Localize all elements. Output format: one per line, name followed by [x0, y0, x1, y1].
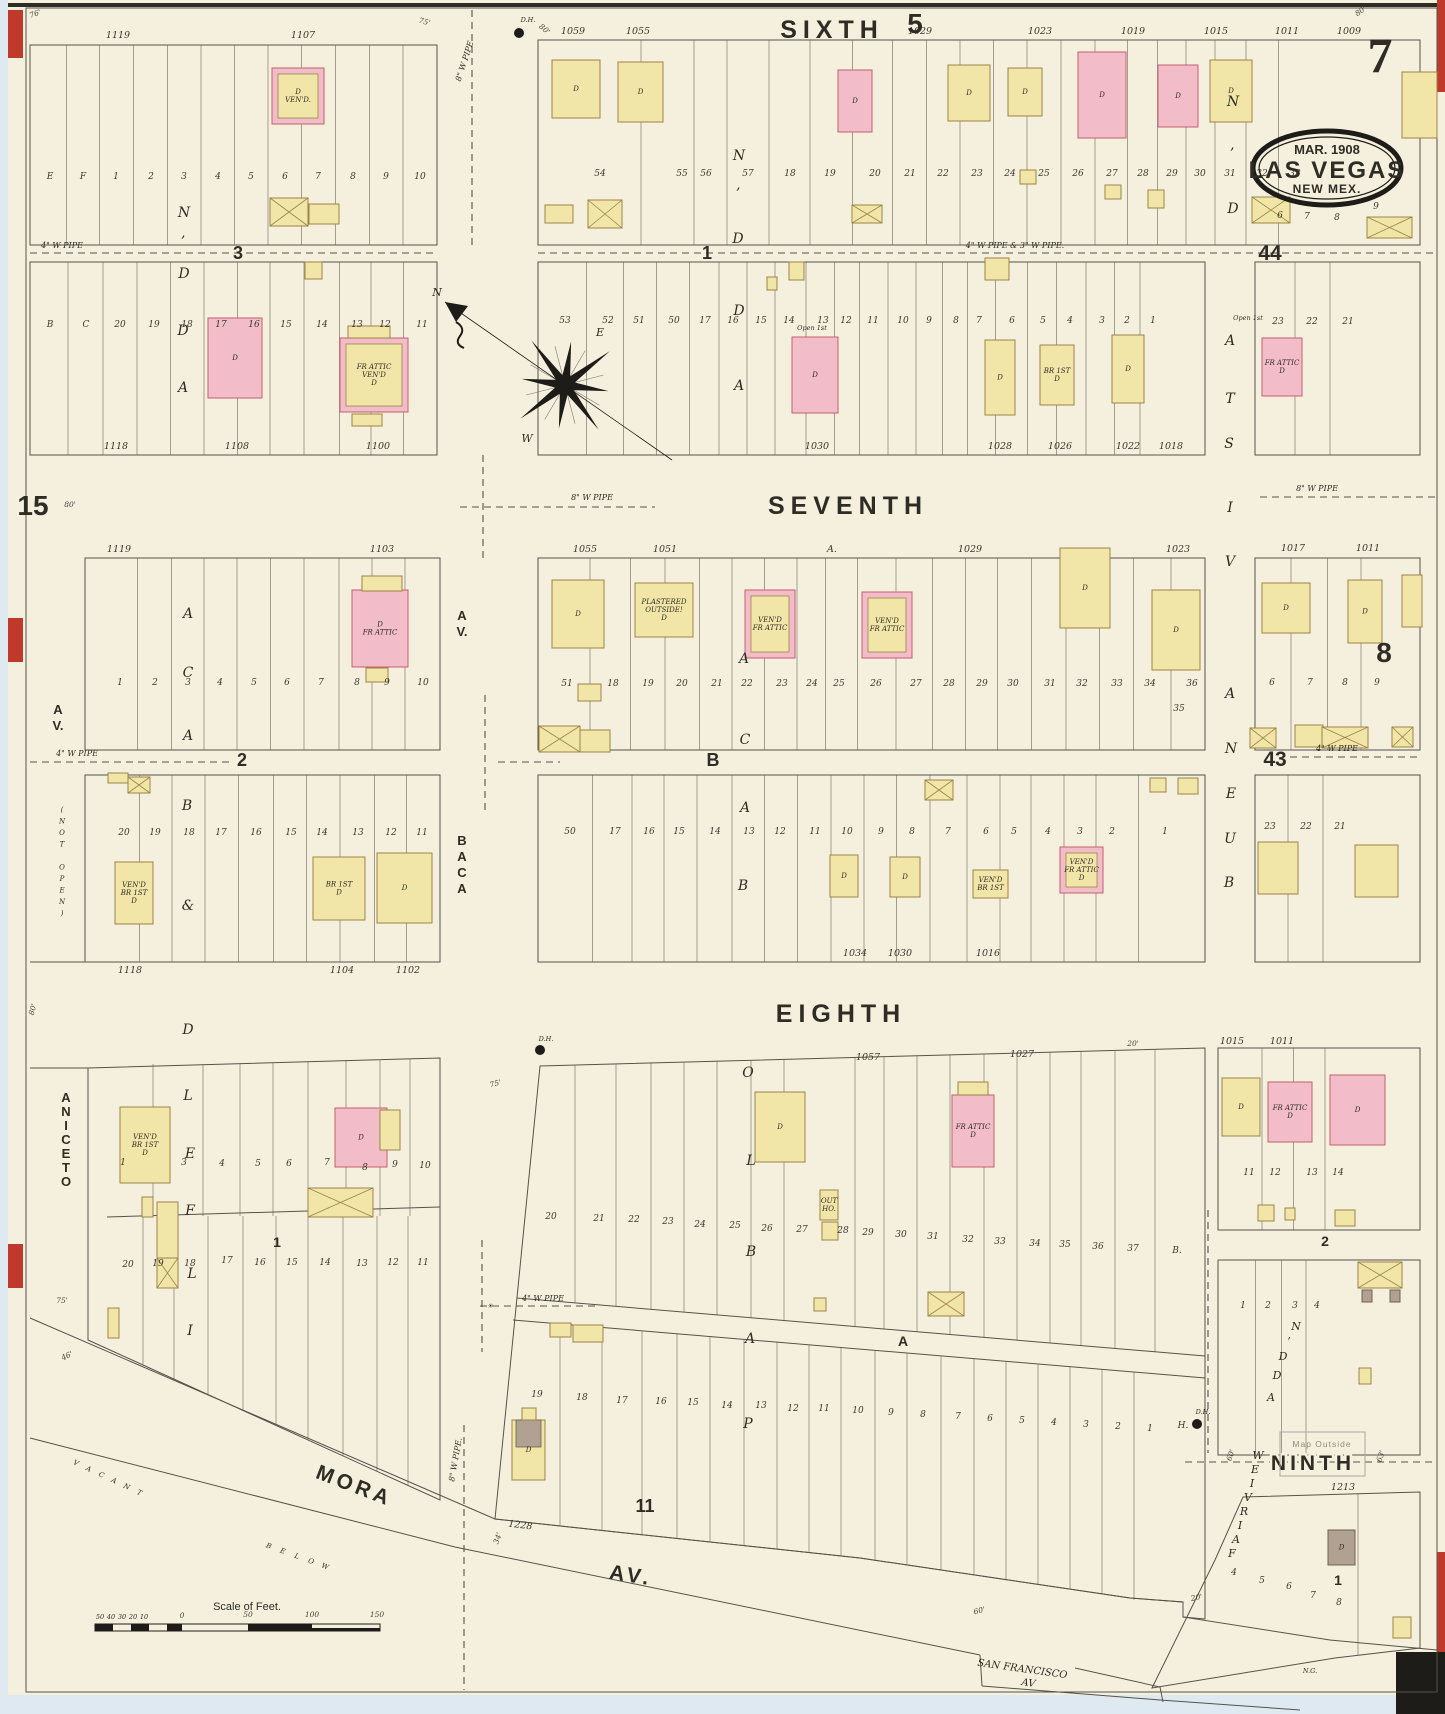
svg-text:20: 20: [117, 828, 130, 838]
svg-text:57: 57: [742, 169, 754, 179]
svg-text:20: 20: [113, 320, 126, 330]
svg-text:1011: 1011: [1275, 26, 1299, 37]
street-label-eighth: EIGHTH: [776, 1000, 906, 1028]
svg-text:O: O: [742, 1065, 754, 1081]
svg-text:100: 100: [305, 1610, 320, 1619]
buildings-layer: DVEN'D.DFR ATTICVEN'DDDFR ATTICVEN'DBR 1…: [108, 28, 1437, 1638]
svg-text:16: 16: [248, 320, 260, 330]
svg-text:12: 12: [387, 1258, 399, 1268]
svg-text:29: 29: [861, 1228, 874, 1238]
svg-text:D: D: [851, 97, 858, 105]
svg-text:15: 15: [280, 320, 292, 330]
svg-text:34': 34': [491, 1531, 503, 1545]
svg-text:D: D: [130, 897, 137, 905]
svg-text:5: 5: [255, 1159, 261, 1169]
svg-text:D: D: [1278, 1350, 1288, 1363]
svg-text:D: D: [840, 872, 847, 880]
svg-text:D: D: [294, 88, 301, 96]
svg-text:1118: 1118: [104, 441, 128, 452]
svg-text:D.H.: D.H.: [1195, 1408, 1211, 1416]
svg-text:32: 32: [1076, 679, 1088, 689]
svg-text:8" W PIPE.: 8" W PIPE.: [447, 1437, 464, 1482]
svg-text:4: 4: [214, 172, 221, 182]
svg-text:1: 1: [273, 1234, 281, 1250]
frame-red-right-1: [1437, 0, 1445, 92]
svg-text:1: 1: [1162, 827, 1168, 837]
svg-text:P: P: [59, 875, 65, 883]
frame-top-line: [8, 3, 1445, 7]
svg-text:17: 17: [215, 828, 227, 838]
svg-text:): ): [60, 910, 64, 918]
svg-text:D: D: [1174, 92, 1181, 100]
svg-text:43: 43: [1263, 748, 1286, 771]
svg-text:D: D: [637, 88, 644, 96]
svg-text:22: 22: [1305, 317, 1318, 327]
svg-text:2: 2: [147, 172, 154, 182]
svg-text:18: 18: [183, 828, 195, 838]
svg-text:8: 8: [350, 172, 356, 182]
svg-text:2: 2: [1123, 316, 1130, 326]
svg-text:1: 1: [1150, 316, 1156, 326]
svg-text:1: 1: [1334, 1572, 1342, 1588]
svg-text:9: 9: [878, 827, 884, 837]
svg-text:75': 75': [418, 16, 432, 28]
svg-text:12: 12: [787, 1404, 799, 1414]
svg-text:10: 10: [419, 1161, 431, 1171]
svg-text:7: 7: [318, 678, 324, 688]
svg-text:✳: ✳: [487, 1302, 493, 1310]
svg-text:VEN'D: VEN'D: [1070, 858, 1094, 866]
svg-text:2: 2: [1264, 1301, 1271, 1311]
svg-text:D: D: [732, 303, 744, 319]
svg-text:N: N: [1290, 1320, 1301, 1333]
svg-text:D: D: [141, 1149, 148, 1157]
svg-text:D: D: [969, 1131, 976, 1139]
svg-text:1030: 1030: [805, 441, 829, 452]
svg-text:D: D: [376, 621, 383, 629]
svg-text:4" W PIPE: 4" W PIPE: [521, 1294, 564, 1303]
svg-text:1059: 1059: [561, 26, 585, 37]
svg-text:D: D: [996, 374, 1003, 382]
svg-text:14: 14: [783, 316, 795, 326]
svg-text:40: 40: [106, 1613, 115, 1621]
svg-text:9: 9: [383, 172, 389, 182]
svg-text:D: D: [1172, 626, 1179, 634]
svg-text:D: D: [335, 889, 342, 897]
svg-text:D: D: [525, 1446, 532, 1454]
svg-text:D: D: [1124, 365, 1131, 373]
svg-text:C: C: [61, 1132, 71, 1147]
svg-text:D: D: [1098, 91, 1105, 99]
svg-text:19: 19: [148, 320, 160, 330]
svg-text:19: 19: [642, 679, 654, 689]
svg-text:OUT: OUT: [821, 1197, 839, 1205]
svg-text:1213: 1213: [1331, 1482, 1355, 1493]
svg-text:FR ATTIC: FR ATTIC: [362, 629, 398, 637]
svg-text:25: 25: [832, 679, 845, 689]
svg-text:A: A: [457, 608, 467, 623]
svg-text:VEN'D: VEN'D: [133, 1133, 157, 1141]
svg-text:1027: 1027: [1010, 1049, 1035, 1060]
svg-text:11: 11: [416, 320, 427, 330]
svg-text:6: 6: [987, 1414, 993, 1424]
svg-text:7: 7: [324, 1158, 330, 1168]
svg-text:D: D: [1354, 1106, 1361, 1114]
frame-black-corner: [1396, 1652, 1445, 1714]
svg-text:16: 16: [250, 828, 262, 838]
svg-text:2: 2: [151, 678, 158, 688]
svg-text:22: 22: [740, 679, 753, 689]
svg-text:1057: 1057: [856, 1052, 881, 1063]
svg-text:17: 17: [616, 1396, 628, 1406]
svg-text:VEN'D: VEN'D: [875, 617, 899, 625]
svg-text:30: 30: [118, 1613, 126, 1621]
svg-text:15: 15: [17, 490, 48, 521]
svg-text:C: C: [183, 665, 194, 681]
svg-text:D: D: [357, 1134, 364, 1142]
svg-text:1: 1: [113, 172, 119, 182]
map-canvas: DVEN'D.DFR ATTICVEN'DDDFR ATTICVEN'DBR 1…: [0, 0, 1445, 1714]
svg-text:1103: 1103: [370, 544, 394, 555]
svg-text:1102: 1102: [396, 965, 420, 976]
svg-text:1228: 1228: [508, 1519, 533, 1533]
svg-text:28: 28: [1136, 169, 1149, 179]
compass-rose: NEW: [431, 286, 672, 463]
svg-text:8: 8: [1336, 1598, 1342, 1608]
svg-text:V.: V.: [52, 718, 63, 733]
svg-text:20: 20: [544, 1212, 557, 1222]
svg-text:23: 23: [970, 169, 983, 179]
svg-text:80': 80': [27, 1003, 39, 1017]
svg-text:VEN'D: VEN'D: [758, 616, 782, 624]
svg-text:10: 10: [897, 316, 909, 326]
svg-text:B: B: [181, 798, 192, 814]
svg-text:D: D: [1286, 1112, 1293, 1120]
svg-text:30: 30: [1194, 169, 1206, 179]
svg-text:21: 21: [1341, 317, 1353, 327]
svg-text:1018: 1018: [1159, 441, 1183, 452]
svg-text:17: 17: [699, 316, 711, 326]
svg-text:20': 20': [1189, 1592, 1203, 1603]
svg-text:51: 51: [561, 679, 572, 689]
svg-text:7: 7: [1307, 678, 1313, 688]
svg-text:8: 8: [909, 827, 915, 837]
svg-text:8: 8: [920, 1410, 926, 1420]
svg-text:Open 1st: Open 1st: [797, 324, 827, 332]
svg-text:4" W PIPE: 4" W PIPE: [55, 749, 98, 758]
svg-text:32: 32: [962, 1235, 974, 1245]
svg-text:5: 5: [1019, 1416, 1025, 1426]
svg-text:1104: 1104: [330, 965, 354, 976]
svg-text:A: A: [181, 728, 193, 744]
svg-text:D: D: [1078, 874, 1085, 882]
svg-text:D: D: [731, 231, 743, 247]
svg-text:5: 5: [907, 8, 923, 39]
svg-text:N: N: [121, 1482, 132, 1493]
svg-text:9: 9: [1374, 678, 1380, 688]
svg-text:VEN'D: VEN'D: [122, 881, 146, 889]
svg-text:20: 20: [675, 679, 688, 689]
svg-text:D: D: [1081, 584, 1088, 592]
svg-text:14: 14: [319, 1258, 331, 1268]
svg-text:V: V: [1244, 1491, 1253, 1504]
svg-text:Open 1st: Open 1st: [1233, 314, 1263, 322]
svg-text:B: B: [264, 1541, 273, 1551]
svg-text:1028: 1028: [988, 441, 1012, 452]
svg-text:3: 3: [1077, 827, 1083, 837]
svg-text:A: A: [737, 651, 749, 667]
svg-text:BR 1ST: BR 1ST: [131, 1141, 160, 1149]
svg-text:11: 11: [416, 828, 427, 838]
svg-text:31: 31: [927, 1232, 938, 1242]
svg-text:T: T: [135, 1488, 144, 1498]
svg-text:I: I: [64, 1118, 68, 1133]
svg-text:7: 7: [945, 827, 951, 837]
svg-text:24: 24: [805, 679, 818, 689]
svg-text:6: 6: [1009, 316, 1015, 326]
svg-text:14: 14: [1332, 1168, 1344, 1178]
svg-text:17: 17: [609, 827, 621, 837]
svg-text:1100: 1100: [366, 441, 390, 452]
svg-text:N: N: [61, 1104, 70, 1119]
svg-text:4: 4: [1313, 1301, 1320, 1311]
svg-text:A: A: [181, 606, 193, 622]
svg-text:1108: 1108: [225, 441, 249, 452]
svg-text:D: D: [1053, 375, 1060, 383]
svg-text:FR ATTIC: FR ATTIC: [955, 1123, 991, 1131]
svg-text:1015: 1015: [1204, 26, 1228, 37]
svg-text:1118: 1118: [118, 965, 142, 976]
svg-text:6: 6: [282, 172, 288, 182]
svg-text:E: E: [278, 1546, 286, 1556]
svg-text:3: 3: [233, 243, 243, 263]
svg-text:D.H.: D.H.: [538, 1035, 554, 1043]
svg-text:55: 55: [676, 169, 688, 179]
svg-text:52: 52: [602, 316, 614, 326]
svg-text:1011: 1011: [1356, 543, 1380, 554]
street-label-seventh: SEVENTH: [768, 492, 928, 520]
svg-text:D: D: [1021, 88, 1028, 96]
svg-text:D: D: [660, 614, 667, 622]
map-outside-note: Map Outside: [1292, 1439, 1351, 1449]
svg-text:13: 13: [351, 320, 363, 330]
svg-text:D: D: [176, 323, 188, 339]
svg-text:28: 28: [836, 1226, 849, 1236]
svg-text:11: 11: [818, 1404, 829, 1414]
svg-text:1051: 1051: [653, 544, 677, 555]
svg-text:12: 12: [774, 827, 786, 837]
svg-text:26: 26: [869, 679, 882, 689]
svg-text:80': 80': [537, 22, 552, 36]
svg-text:1016: 1016: [976, 948, 1000, 959]
svg-text:T: T: [1225, 391, 1236, 407]
svg-text:16: 16: [643, 827, 655, 837]
svg-text:FR ATTIC: FR ATTIC: [356, 363, 392, 371]
frame-red-left-2: [8, 618, 23, 662]
svg-text:33: 33: [1111, 679, 1123, 689]
svg-text:10: 10: [841, 827, 853, 837]
svg-text:VEN'D: VEN'D: [979, 876, 1003, 884]
svg-text:B: B: [457, 833, 466, 848]
svg-text:E: E: [1225, 786, 1236, 802]
svg-text:80': 80': [64, 500, 76, 509]
street-label-sixth: SIXTH: [780, 16, 884, 44]
svg-text:D: D: [1237, 1103, 1244, 1111]
svg-text:D: D: [1226, 201, 1238, 217]
svg-text:FR ATTIC: FR ATTIC: [869, 625, 905, 633]
svg-text:19: 19: [824, 169, 836, 179]
svg-text:F: F: [184, 1203, 196, 1219]
svg-text:15: 15: [286, 1258, 298, 1268]
svg-text:15: 15: [673, 827, 685, 837]
svg-text:19: 19: [152, 1259, 164, 1269]
svg-text:30: 30: [1007, 679, 1019, 689]
svg-text:A: A: [61, 1090, 71, 1105]
svg-text:63': 63': [1374, 1449, 1386, 1463]
svg-text:37: 37: [1127, 1244, 1139, 1254]
svg-text:18: 18: [576, 1393, 588, 1403]
svg-text:9: 9: [926, 316, 932, 326]
svg-text:C: C: [83, 320, 90, 330]
svg-text:0: 0: [180, 1611, 185, 1620]
svg-text:27: 27: [909, 679, 922, 689]
svg-text:1107: 1107: [291, 30, 316, 41]
svg-text:1: 1: [120, 1158, 126, 1168]
svg-text:B: B: [745, 1244, 756, 1260]
svg-text:18: 18: [784, 169, 796, 179]
svg-text:50: 50: [668, 316, 680, 326]
svg-text:12: 12: [379, 320, 391, 330]
svg-text:6: 6: [1286, 1582, 1292, 1592]
svg-text:25: 25: [728, 1221, 741, 1231]
svg-text:D: D: [1361, 608, 1368, 616]
svg-text:13: 13: [743, 827, 755, 837]
svg-text:21: 21: [1333, 822, 1345, 832]
svg-text:W: W: [521, 432, 534, 445]
svg-text:6: 6: [1269, 678, 1275, 688]
svg-text:20: 20: [128, 1613, 137, 1621]
svg-text:BR 1ST: BR 1ST: [1043, 367, 1072, 375]
svg-text:23: 23: [1263, 822, 1276, 832]
svg-text:14: 14: [709, 827, 721, 837]
svg-text:14: 14: [316, 828, 328, 838]
svg-text:8" W PIPE: 8" W PIPE: [571, 493, 613, 502]
svg-text:11: 11: [809, 827, 820, 837]
svg-text:5: 5: [248, 172, 254, 182]
svg-text:T: T: [62, 1160, 70, 1175]
svg-text:27: 27: [795, 1225, 808, 1235]
svg-text:A: A: [457, 881, 467, 896]
svg-text:FR ATTIC: FR ATTIC: [752, 624, 788, 632]
svg-text:4" W PIPE & 3" W PIPE.: 4" W PIPE & 3" W PIPE.: [965, 241, 1064, 250]
svg-text:O: O: [59, 864, 65, 872]
svg-text:E: E: [62, 1146, 71, 1161]
svg-text:10: 10: [852, 1406, 864, 1416]
svg-text:A: A: [1231, 1533, 1240, 1546]
svg-text:25: 25: [1037, 169, 1050, 179]
svg-text:E: E: [595, 326, 604, 339]
svg-text:23: 23: [661, 1217, 674, 1227]
svg-text:24: 24: [693, 1220, 706, 1230]
svg-text:R: R: [1239, 1505, 1248, 1518]
svg-text:7: 7: [1304, 212, 1310, 222]
svg-text:B: B: [46, 320, 54, 330]
svg-text:31: 31: [1224, 169, 1235, 179]
svg-text:H.: H.: [1177, 1421, 1189, 1431]
svg-text:14: 14: [721, 1401, 733, 1411]
svg-text:8: 8: [362, 1163, 368, 1173]
svg-text:U: U: [1224, 831, 1237, 847]
svg-text:17: 17: [221, 1256, 233, 1266]
svg-text:D.H.: D.H.: [520, 16, 536, 24]
svg-text:’: ’: [181, 234, 185, 250]
scale-bar: [95, 1624, 380, 1631]
svg-text:FR ATTIC: FR ATTIC: [1063, 866, 1099, 874]
street-label-san-francisco-av: AV: [1020, 1677, 1038, 1690]
svg-text:BR 1ST: BR 1ST: [325, 881, 354, 889]
svg-text:C: C: [97, 1470, 106, 1480]
svg-text:D: D: [401, 884, 408, 892]
svg-text:13: 13: [1306, 1168, 1318, 1178]
svg-text:1119: 1119: [107, 544, 131, 555]
svg-text:36: 36: [1186, 679, 1198, 689]
svg-text:5: 5: [1259, 1576, 1265, 1586]
svg-text:53: 53: [559, 316, 571, 326]
svg-text:12: 12: [840, 316, 852, 326]
svg-text:E: E: [1250, 1463, 1259, 1476]
svg-text:10: 10: [140, 1613, 148, 1621]
svg-text:O: O: [307, 1557, 315, 1567]
svg-text:5: 5: [1040, 316, 1046, 326]
svg-text:16: 16: [655, 1397, 667, 1407]
svg-text:A: A: [743, 1331, 755, 1347]
svg-text:29: 29: [1165, 169, 1178, 179]
svg-text:30: 30: [895, 1230, 907, 1240]
svg-text:P: P: [742, 1416, 753, 1432]
svg-text:2: 2: [1114, 1422, 1121, 1432]
svg-text:A: A: [176, 380, 188, 396]
svg-text:21: 21: [710, 679, 722, 689]
svg-text:4: 4: [216, 678, 223, 688]
svg-text:I: I: [1249, 1477, 1255, 1490]
svg-text:N: N: [431, 286, 442, 299]
svg-text:’: ’: [1230, 146, 1234, 162]
svg-text:60': 60': [1224, 1448, 1236, 1462]
svg-text:OUTSIDE!: OUTSIDE!: [645, 606, 683, 614]
svg-text:F: F: [79, 172, 87, 182]
svg-text:D: D: [177, 266, 189, 282]
svg-text:36: 36: [1092, 1242, 1104, 1252]
svg-text:1026: 1026: [1048, 441, 1072, 452]
svg-text:15: 15: [687, 1398, 699, 1408]
frame-red-left-3: [8, 1244, 23, 1288]
svg-text:4: 4: [1044, 827, 1051, 837]
svg-text:B: B: [737, 878, 748, 894]
title-date: MAR. 1908: [1294, 142, 1360, 157]
svg-text:9: 9: [384, 678, 390, 688]
svg-text:8" W PIPE: 8" W PIPE: [1296, 484, 1338, 493]
svg-text:N.G.: N.G.: [1302, 1667, 1317, 1675]
svg-text:&: &: [182, 898, 194, 914]
svg-text:4: 4: [1066, 316, 1073, 326]
svg-text:60': 60': [973, 1605, 987, 1617]
svg-text:D: D: [1272, 1369, 1282, 1382]
svg-text:7: 7: [955, 1412, 961, 1422]
svg-text:E: E: [184, 1146, 195, 1162]
svg-text:31: 31: [1044, 679, 1055, 689]
svg-text:27: 27: [1105, 169, 1118, 179]
svg-text:44: 44: [1258, 242, 1282, 265]
